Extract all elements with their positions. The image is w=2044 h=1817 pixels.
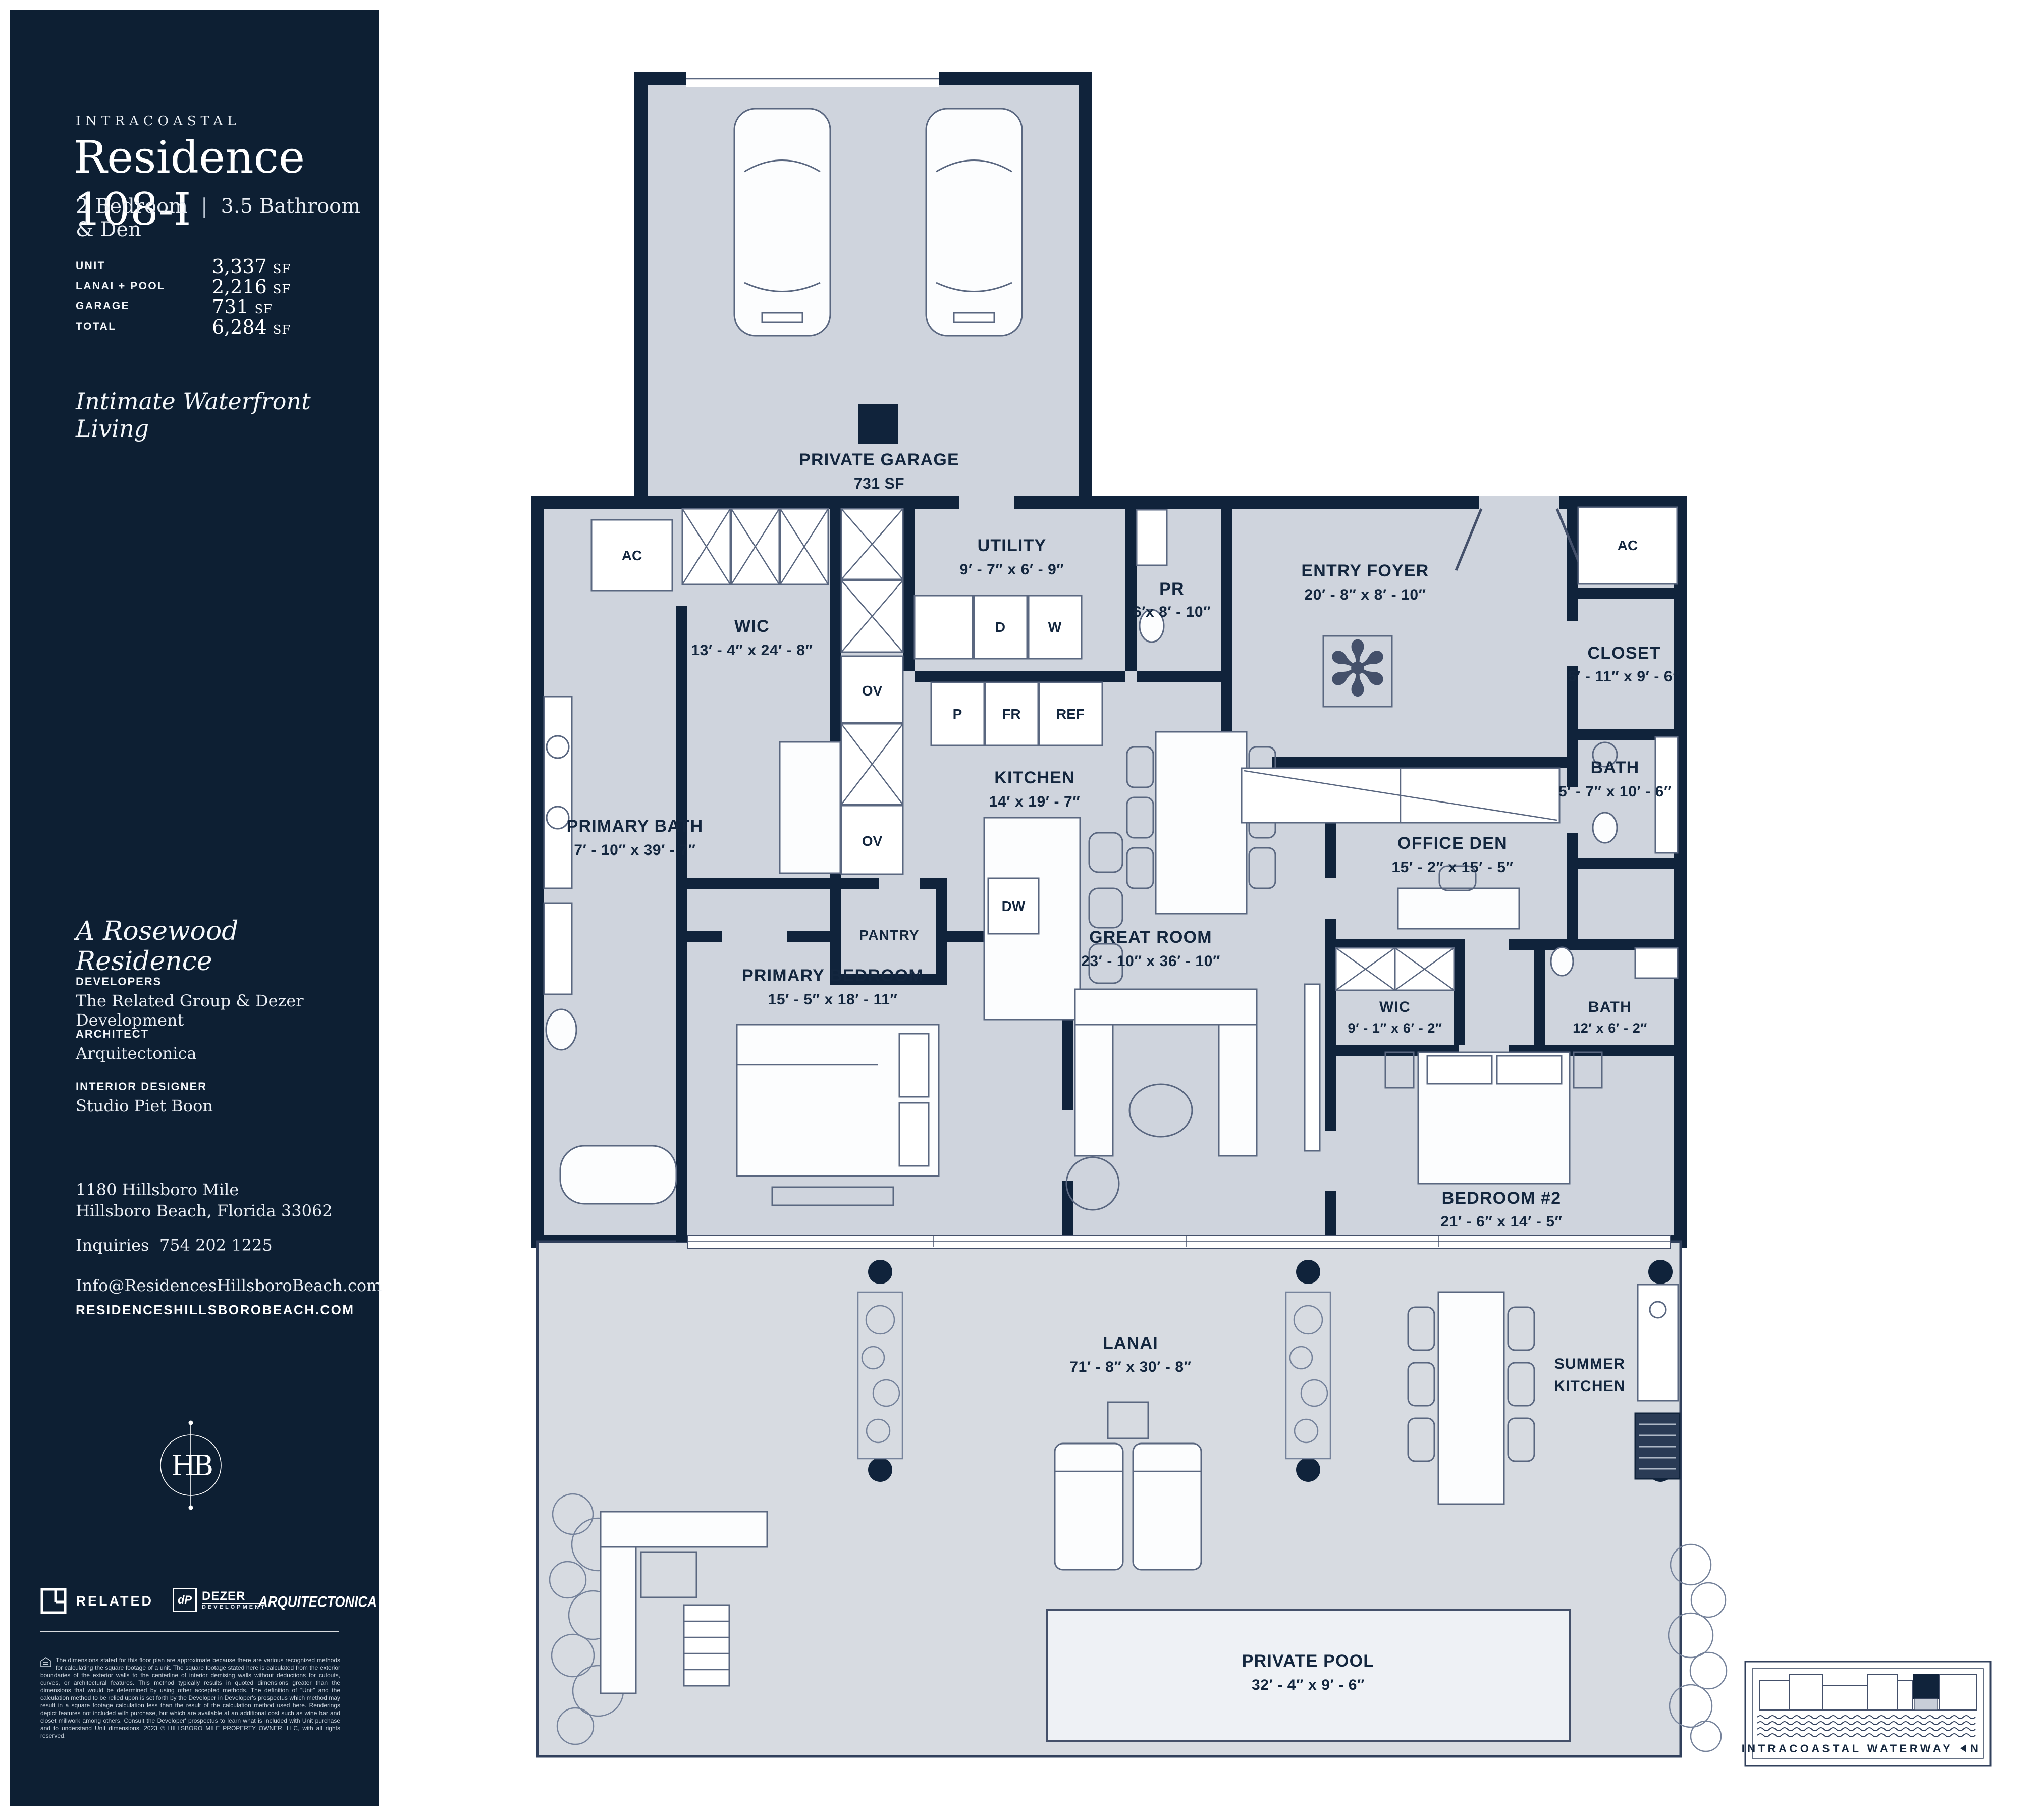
room-dims-primary-bedroom: 15′ - 5″ x 18′ - 11″ xyxy=(768,991,898,1008)
credit-label-architect: ARCHITECT xyxy=(76,1028,149,1041)
equal-housing-icon xyxy=(40,1657,51,1667)
room-dims-wic-primary: 13′ - 4″ x 24′ - 8″ xyxy=(691,642,813,659)
stat-value: 2,216 xyxy=(212,276,267,298)
bedroom2-bed xyxy=(1385,1052,1602,1184)
room-dims-utility: 9′ - 7″ x 6′ - 9″ xyxy=(960,561,1064,578)
dezer-subtitle: DEVELOPMENT xyxy=(202,1604,266,1610)
room-label-primary-bath: PRIMARY BATH xyxy=(567,817,704,836)
room-dims-garage: 731 SF xyxy=(854,475,904,492)
room-dims-bedroom2: 21′ - 6″ x 14′ - 5″ xyxy=(1440,1213,1562,1230)
room-label-garage: PRIVATE GARAGE xyxy=(799,450,959,469)
appliance-label-washer: W xyxy=(1048,619,1062,635)
credit-value-developers: The Related Group & Dezer Development xyxy=(76,991,379,1030)
stat-label: LANAI + POOL xyxy=(76,280,166,292)
entry-closet xyxy=(1242,768,1559,823)
plant-icon: ✻ xyxy=(1326,627,1389,712)
room-label-lanai: LANAI xyxy=(1103,1333,1158,1353)
unit-summary: 2 Bedroom|3.5 Bathroom & Den xyxy=(76,195,379,241)
pantry-door-opening xyxy=(879,876,920,890)
credit-value-architect: Arquitectonica xyxy=(76,1044,196,1063)
inquiries-line: Inquiries 754 202 1225 xyxy=(76,1236,273,1255)
room-label-bath2: BATH xyxy=(1588,999,1632,1016)
related-wordmark: RELATED xyxy=(76,1593,153,1609)
stat-value: 6,284 xyxy=(212,316,267,338)
stat-unit: SF xyxy=(273,262,291,276)
room-label-office: OFFICE DEN xyxy=(1397,834,1508,853)
room-label-kitchen: KITCHEN xyxy=(994,768,1075,787)
locator-minimap: INTRACOASTAL WATERWAY N xyxy=(1742,1662,1991,1766)
north-label: N xyxy=(1970,1742,1978,1755)
credit-label-interior-designer: INTERIOR DESIGNER xyxy=(76,1080,207,1093)
sliding-doors xyxy=(687,1235,1671,1248)
appliance-label-refrigerator: REF xyxy=(1056,706,1085,722)
hillsboro-monogram-icon: HB xyxy=(140,1405,241,1526)
room-label-wic-primary: WIC xyxy=(734,617,770,636)
room-label-summer-kitchen-1: SUMMER xyxy=(1554,1356,1626,1372)
stat-value: 3,337 xyxy=(212,255,267,278)
related-logo: RELATED xyxy=(40,1588,153,1616)
stat-label: TOTAL xyxy=(76,320,117,333)
room-dims-closet: 5′ - 11″ x 9′ - 6″ xyxy=(1568,668,1680,685)
separator: | xyxy=(201,195,207,218)
closet-hatch xyxy=(682,509,828,584)
stat-unit: SF xyxy=(273,323,291,337)
appliance-label-pantry: P xyxy=(953,706,962,722)
credit-value-interior-designer: Studio Piet Boon xyxy=(76,1096,213,1115)
steps xyxy=(684,1605,729,1686)
room-label-entry: ENTRY FOYER xyxy=(1301,561,1429,580)
ac-label: AC xyxy=(622,548,642,563)
room-dims-wic2: 9′ - 1″ x 6′ - 2″ xyxy=(1348,1021,1442,1036)
appliance-label-dryer: D xyxy=(995,619,1005,635)
dezer-icon: dP xyxy=(173,1588,197,1612)
room-label-powder: PR xyxy=(1159,579,1185,599)
stat-unit: SF xyxy=(273,282,291,296)
ac-label: AC xyxy=(1618,538,1638,553)
tagline: Intimate Waterfront Living xyxy=(76,388,379,442)
closet-hatch xyxy=(1336,948,1454,990)
room-label-pantry: PANTRY xyxy=(859,927,919,943)
utility-cabinet xyxy=(915,596,973,659)
room-dims-great-room: 23′ - 10″ x 36′ - 10″ xyxy=(1081,953,1220,970)
stat-label: GARAGE xyxy=(76,300,130,312)
entry-door-opening xyxy=(1479,496,1559,509)
credit-label-developers: DEVELOPERS xyxy=(76,975,162,988)
room-dims-pool: 32′ - 4″ x 9′ - 6″ xyxy=(1252,1677,1365,1693)
room-label-summer-kitchen-2: KITCHEN xyxy=(1554,1378,1626,1395)
room-dims-primary-bath: 7′ - 10″ x 39′ - 7″ xyxy=(574,842,695,859)
legal-disclaimer: The dimensions stated for this floor pla… xyxy=(40,1656,340,1740)
highlighted-unit xyxy=(1913,1674,1939,1699)
dezer-logo: dP DEZER DEVELOPMENT xyxy=(173,1588,266,1612)
stat-unit: SF xyxy=(255,302,273,316)
inquiries-phone: 754 202 1225 xyxy=(159,1236,273,1255)
room-label-bedroom2: BEDROOM #2 xyxy=(1442,1189,1562,1208)
garage-column xyxy=(858,404,898,444)
stat-label: UNIT xyxy=(76,260,105,272)
project-eyebrow: INTRACOASTAL xyxy=(76,114,240,129)
car-icon xyxy=(926,109,1022,336)
room-dims-powder: 6′x 8′ - 10″ xyxy=(1133,604,1211,620)
wic-island xyxy=(780,742,840,873)
room-label-wic2: WIC xyxy=(1379,999,1411,1016)
room-dims-office: 15′ - 2″ x 15′ - 5″ xyxy=(1391,859,1513,876)
stat-row-garage: GARAGE 731 SF xyxy=(76,296,318,316)
minimap-label: INTRACOASTAL WATERWAY xyxy=(1742,1742,1953,1755)
stat-row-lanai-pool: LANAI + POOL 2,216 SF xyxy=(76,276,318,296)
appliance-label-oven: OV xyxy=(862,833,883,849)
monogram-letters: HB xyxy=(171,1450,212,1482)
building-footprint xyxy=(1759,1674,1976,1710)
room-label-great-room: GREAT ROOM xyxy=(1089,928,1212,947)
appliance-label-dishwasher: DW xyxy=(1002,898,1026,914)
related-icon xyxy=(40,1588,67,1614)
car-icon xyxy=(734,109,830,336)
floorplan-sheet: OV OV D W P FR REF DW ✻ xyxy=(0,0,2044,1817)
room-label-pool: PRIVATE POOL xyxy=(1242,1651,1375,1671)
address-line-1: 1180 Hillsboro Mile xyxy=(76,1180,239,1199)
appliance-label-oven: OV xyxy=(862,683,883,699)
info-sidebar: INTRACOASTAL Residence 108-I 2 Bedroom|3… xyxy=(10,10,379,1806)
footer-divider xyxy=(40,1631,339,1632)
room-label-bath-guest: BATH xyxy=(1591,758,1640,777)
pool xyxy=(1047,1610,1570,1741)
stat-row-unit: UNIT 3,337 SF xyxy=(76,255,318,276)
contact-email: Info@ResidencesHillsboroBeach.com xyxy=(76,1276,382,1295)
disclaimer-text: The dimensions stated for this floor pla… xyxy=(40,1656,340,1739)
room-label-utility: UTILITY xyxy=(978,536,1047,555)
room-dims-kitchen: 14′ x 19′ - 7″ xyxy=(989,793,1081,810)
room-dims-entry: 20′ - 8″ x 8′ - 10″ xyxy=(1304,586,1426,603)
dezer-wordmark: DEZER xyxy=(202,1590,266,1604)
inquiries-label: Inquiries xyxy=(76,1236,149,1255)
website-url: RESIDENCESHILLSBOROBEACH.COM xyxy=(76,1302,354,1318)
room-dims-lanai: 71′ - 8″ x 30′ - 8″ xyxy=(1069,1359,1191,1375)
stat-row-total: TOTAL 6,284 SF xyxy=(76,316,318,336)
address-line-2: Hillsboro Beach, Florida 33062 xyxy=(76,1201,333,1220)
wall xyxy=(959,496,1014,509)
appliance-label-freezer: FR xyxy=(1002,706,1020,722)
bedroom-count: 2 Bedroom xyxy=(76,195,188,218)
summer-kitchen-counter xyxy=(1635,1285,1680,1479)
room-label-primary-bedroom: PRIMARY BEDROOM xyxy=(742,966,924,985)
collection-line: A Rosewood Residence xyxy=(76,916,379,977)
room-dims-bath2: 12′ x 6′ - 2″ xyxy=(1573,1021,1647,1036)
room-label-closet: CLOSET xyxy=(1587,644,1660,663)
arquitectonica-logo: ARQUITECTONICA xyxy=(258,1593,377,1611)
room-dims-bath-guest: 5′ - 7″ x 10′ - 6″ xyxy=(1558,783,1672,800)
stat-value: 731 xyxy=(212,296,249,318)
